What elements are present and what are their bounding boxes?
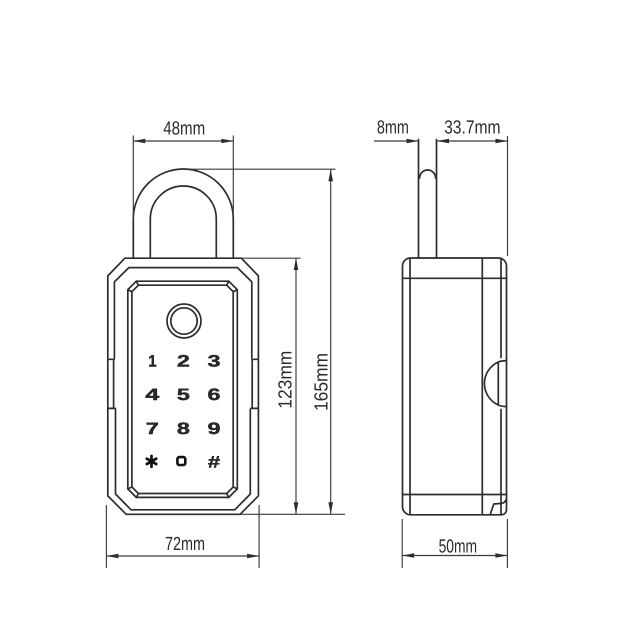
svg-text:48mm: 48mm [163, 119, 205, 140]
svg-text:3: 3 [208, 352, 221, 370]
svg-text:8mm: 8mm [377, 118, 409, 139]
svg-text:33.7mm: 33.7mm [444, 118, 501, 139]
svg-text:72mm: 72mm [165, 534, 205, 555]
svg-text:4: 4 [145, 386, 160, 404]
svg-text:#: # [208, 453, 220, 471]
svg-text:6: 6 [208, 386, 221, 404]
svg-text:9: 9 [208, 420, 221, 438]
svg-text:8: 8 [177, 420, 190, 438]
svg-text:123mm: 123mm [276, 351, 297, 409]
svg-text:1: 1 [148, 352, 156, 370]
svg-text:50mm: 50mm [439, 537, 478, 558]
svg-text:2: 2 [177, 352, 190, 370]
svg-text:7: 7 [146, 420, 159, 438]
svg-text:5: 5 [177, 386, 190, 404]
svg-text:165mm: 165mm [311, 353, 332, 411]
